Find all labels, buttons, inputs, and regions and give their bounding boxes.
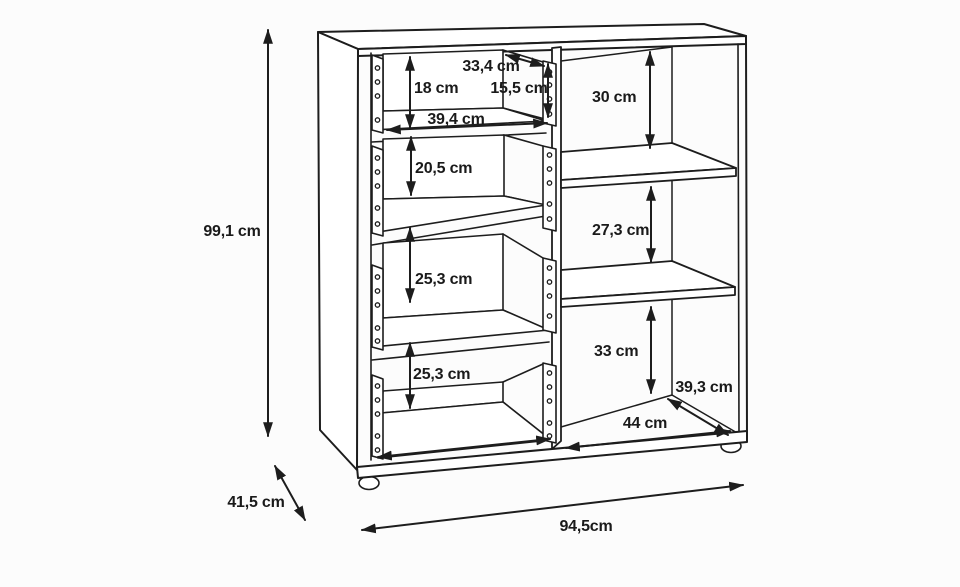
drawer2-floor [372, 196, 546, 233]
label-overall-height: 99,1 cm [203, 224, 260, 240]
rail-left-2 [372, 146, 383, 236]
floor-right-edge [672, 395, 739, 434]
label-shelf-inner-width: 44 cm [623, 416, 667, 432]
label-shelf-depth: 39,3 cm [675, 380, 732, 396]
rail-right-3 [543, 258, 556, 333]
furniture-dimension-diagram: 99,1 cm 41,5 cm 94,5cm 18 cm 33,4 cm 15,… [0, 0, 960, 587]
cabinet-line-drawing [0, 0, 960, 587]
right-inner-edge [738, 44, 739, 436]
label-drawer-inner-width: 39,4 cm [427, 112, 484, 128]
label-shelf1-height: 30 cm [592, 90, 636, 106]
label-drawer2-height: 20,5 cm [415, 161, 472, 177]
label-drawer1-height: 18 cm [414, 81, 458, 97]
drawer4-floor [378, 402, 551, 458]
right-outer-edge [746, 36, 747, 441]
label-drawer4-height: 25,3 cm [413, 367, 470, 383]
label-overall-depth: 41,5 cm [227, 495, 284, 511]
label-drawer3-height: 25,3 cm [415, 272, 472, 288]
label-shelf3-height: 33 cm [594, 344, 638, 360]
arrow-shelf-depth [668, 399, 728, 435]
label-drawer1-depth: 33,4 cm [462, 59, 519, 75]
label-drawer1-front-height: 15,5 cm [490, 81, 547, 97]
arrow-overall-depth [275, 466, 305, 520]
left-side-panel [318, 32, 358, 470]
label-overall-width: 94,5cm [559, 519, 612, 535]
label-shelf2-height: 27,3 cm [592, 223, 649, 239]
rail-right-2 [543, 146, 556, 231]
arrow-overall-width [362, 485, 743, 530]
